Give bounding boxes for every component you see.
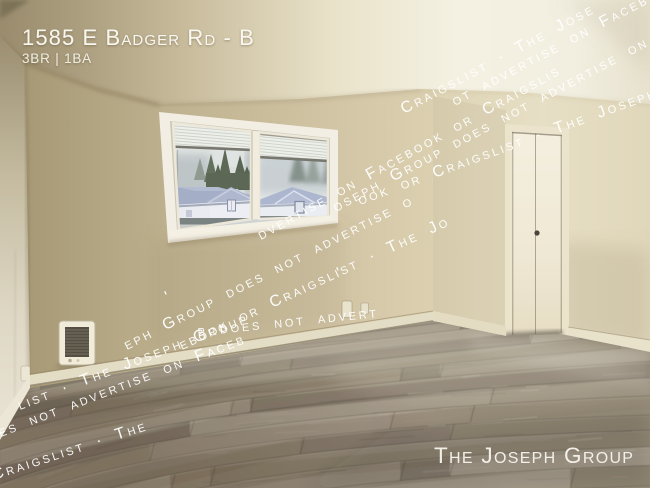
svg-text:1585 E Badger Rd - B: 1585 E Badger Rd - B bbox=[22, 25, 255, 50]
svg-text:The Joseph Group: The Joseph Group bbox=[434, 443, 634, 468]
svg-text:3BR | 1BA: 3BR | 1BA bbox=[22, 51, 92, 66]
